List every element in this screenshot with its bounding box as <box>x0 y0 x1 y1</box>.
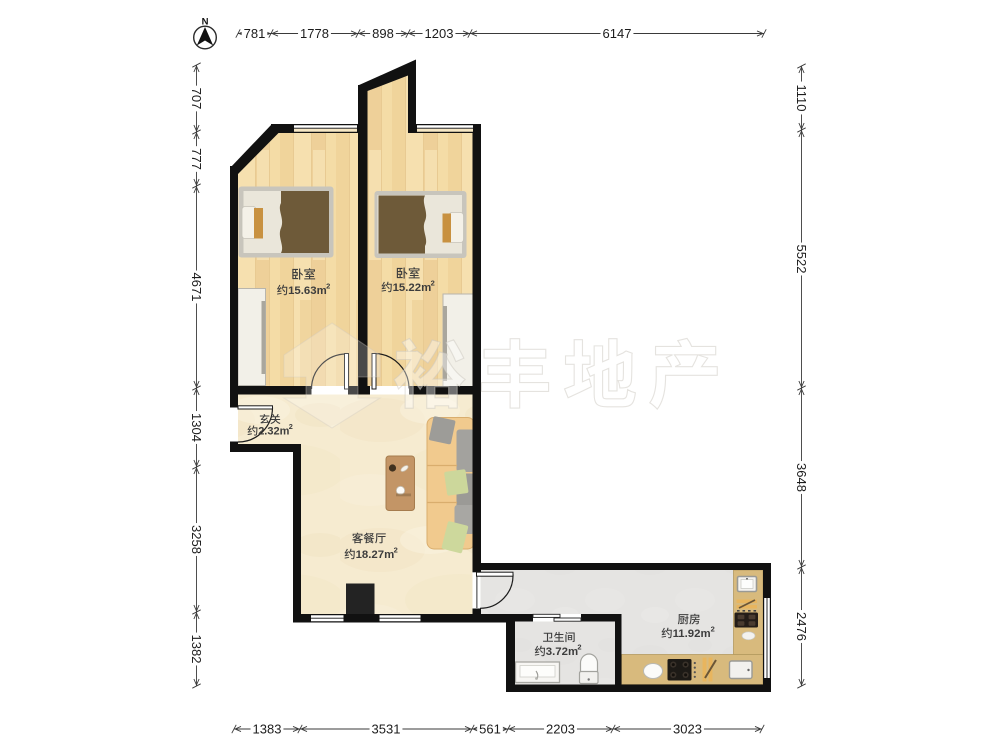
svg-text:11.92m: 11.92m <box>673 628 711 640</box>
svg-text:6147: 6147 <box>603 26 632 41</box>
svg-text:2476: 2476 <box>794 612 809 641</box>
svg-text:N: N <box>202 17 209 28</box>
svg-text:2.32m: 2.32m <box>258 426 289 438</box>
svg-text:2: 2 <box>326 282 330 291</box>
svg-text:2: 2 <box>711 625 715 634</box>
svg-text:1778: 1778 <box>300 26 329 41</box>
svg-text:777: 777 <box>189 148 204 170</box>
svg-text:2: 2 <box>577 643 581 652</box>
svg-text:898: 898 <box>372 26 394 41</box>
svg-text:3648: 3648 <box>794 463 809 492</box>
svg-text:18.27m: 18.27m <box>356 549 395 561</box>
svg-text:2: 2 <box>431 279 435 288</box>
svg-text:15.22m: 15.22m <box>393 282 432 294</box>
svg-text:561: 561 <box>479 721 501 736</box>
svg-text:3258: 3258 <box>189 525 204 554</box>
svg-text:2203: 2203 <box>546 721 575 736</box>
svg-text:2: 2 <box>289 422 293 431</box>
svg-text:5522: 5522 <box>794 245 809 274</box>
svg-text:2: 2 <box>394 546 398 555</box>
svg-text:1110: 1110 <box>794 85 809 112</box>
svg-text:3.72m: 3.72m <box>546 646 578 658</box>
svg-text:781: 781 <box>244 26 266 41</box>
svg-text:15.63m: 15.63m <box>288 285 327 297</box>
svg-text:1382: 1382 <box>189 635 204 664</box>
svg-text:1304: 1304 <box>189 413 204 442</box>
svg-text:3531: 3531 <box>372 721 401 736</box>
svg-text:4671: 4671 <box>189 273 204 302</box>
svg-text:3023: 3023 <box>673 721 702 736</box>
svg-text:707: 707 <box>189 88 204 110</box>
svg-text:1203: 1203 <box>425 26 454 41</box>
svg-text:1383: 1383 <box>253 721 282 736</box>
